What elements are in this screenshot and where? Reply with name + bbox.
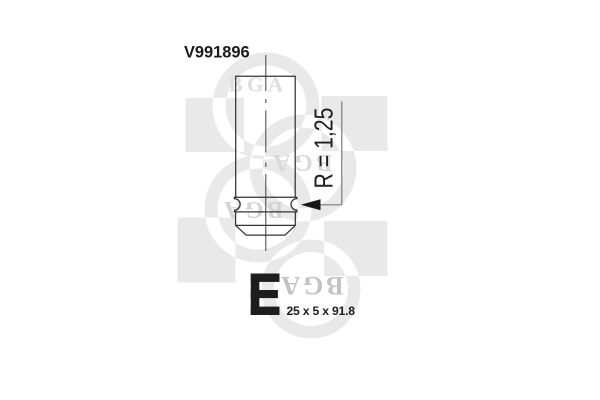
svg-text:R = 1,25: R = 1,25 (310, 108, 338, 189)
svg-text:BGA: BGA (278, 271, 343, 300)
svg-text:25 x 5 x 91.8: 25 x 5 x 91.8 (287, 304, 356, 318)
svg-text:BGA: BGA (221, 196, 284, 222)
svg-text:V991896: V991896 (184, 44, 250, 62)
